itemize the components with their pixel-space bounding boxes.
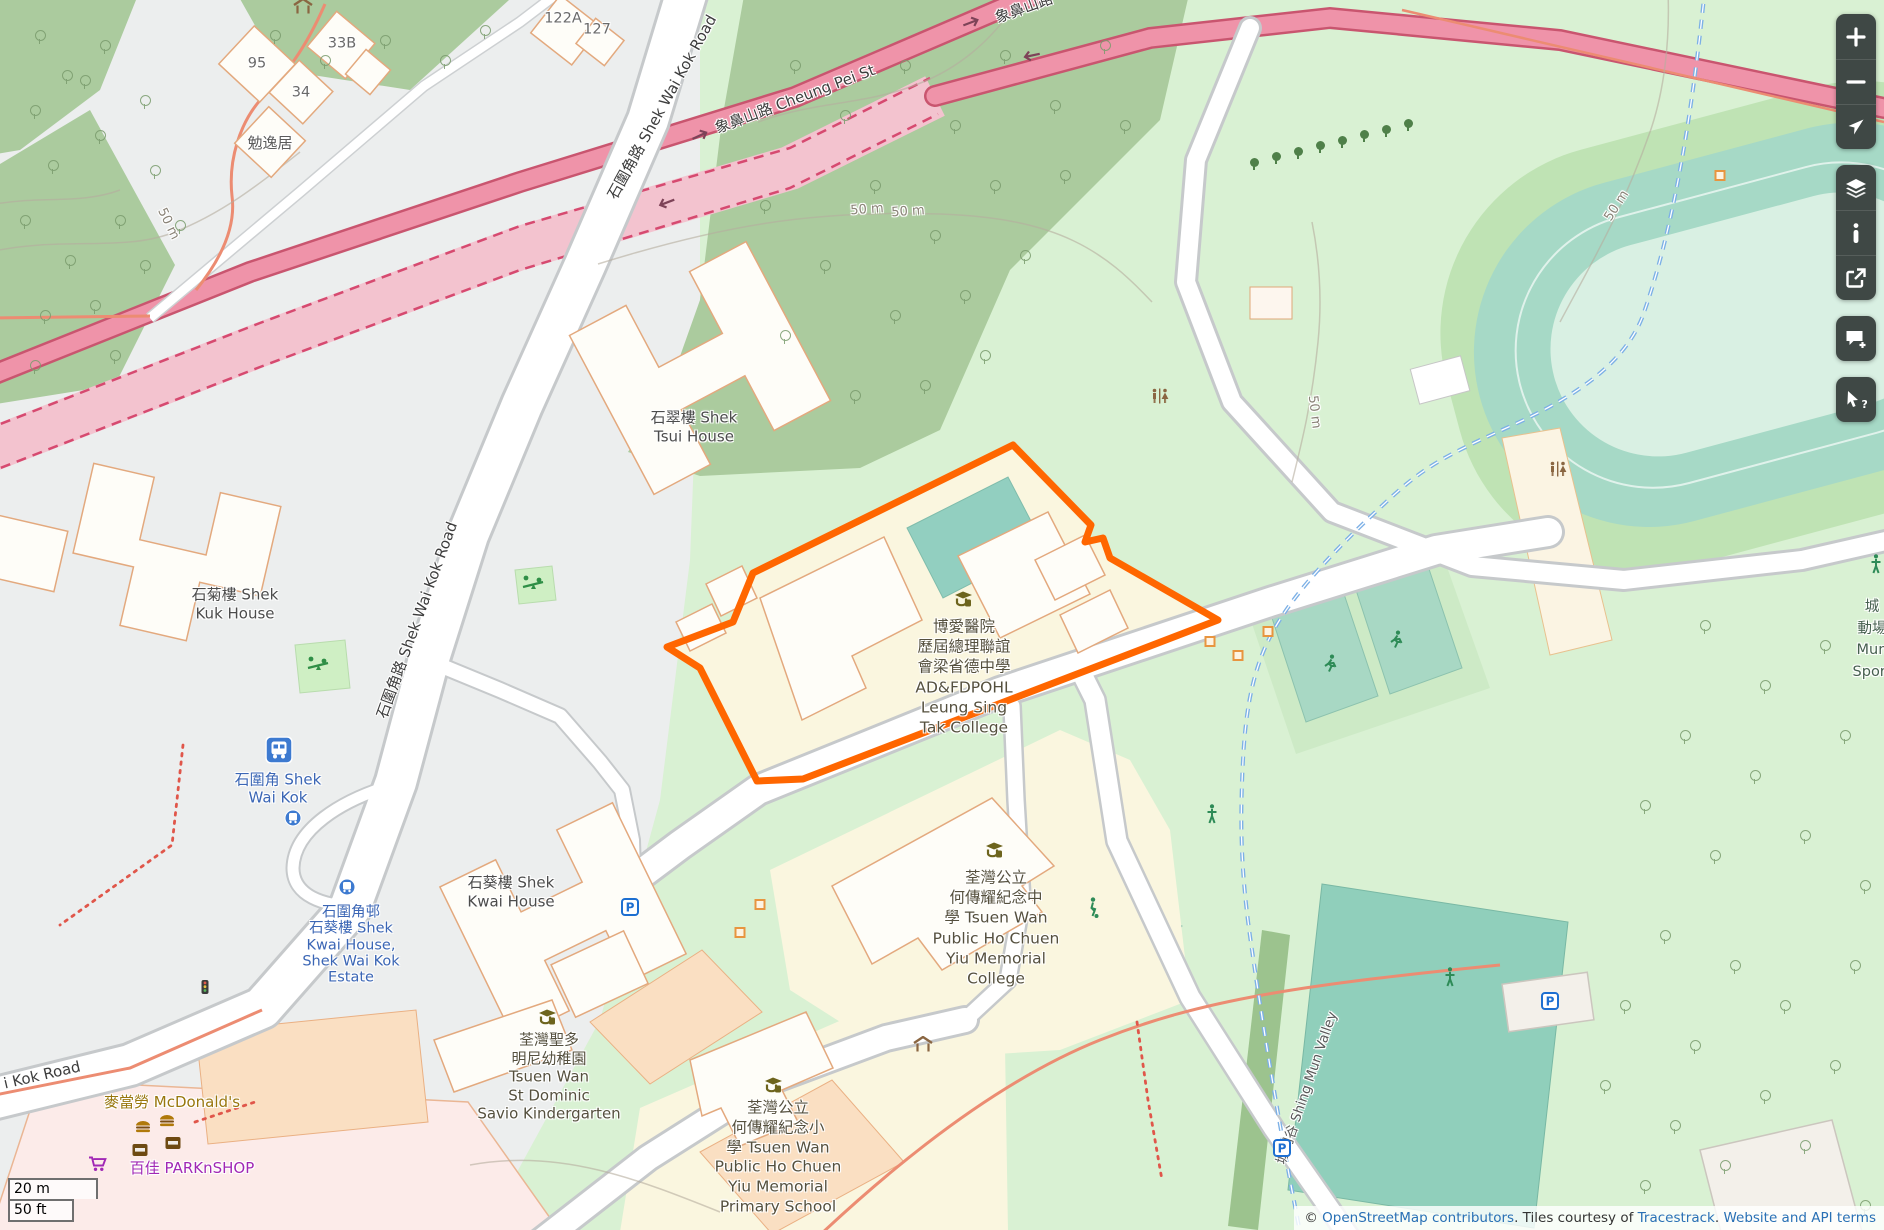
tree-icon <box>850 390 861 401</box>
tree-icon <box>270 30 281 41</box>
tree-icon <box>1000 50 1011 61</box>
tree-icon <box>65 255 76 266</box>
tree-icon <box>1830 1060 1841 1071</box>
tree-icon <box>1750 770 1761 781</box>
comment-plus-icon <box>1845 329 1867 349</box>
locate-button[interactable] <box>1836 104 1876 149</box>
tree-icon <box>1840 730 1851 741</box>
attribution: © OpenStreetMap contributors. Tiles cour… <box>1294 1206 1884 1230</box>
tree-icon <box>1690 1040 1701 1051</box>
tree-icon <box>1720 1160 1731 1171</box>
tree-icon <box>1730 960 1741 971</box>
attribution-prefix: © <box>1304 1210 1322 1226</box>
control-group: ? <box>1836 377 1876 422</box>
tree-icon <box>1700 620 1711 631</box>
control-group <box>1836 165 1876 300</box>
info-icon <box>1852 223 1860 243</box>
tree-icon <box>1800 830 1811 841</box>
tree-icon <box>780 330 791 341</box>
tree-icon <box>1860 880 1871 891</box>
tree-icon <box>980 350 991 361</box>
tree-icon <box>380 35 391 46</box>
tree-icon <box>840 110 851 121</box>
tree-icon <box>1820 640 1831 651</box>
navigation-arrow-icon <box>1847 118 1865 136</box>
tree-icon <box>1850 960 1861 971</box>
tree-icon <box>95 130 106 141</box>
tree-icon <box>1780 1000 1791 1011</box>
tree-icon <box>1060 170 1071 181</box>
layers-button[interactable] <box>1836 165 1876 210</box>
share-icon <box>1846 268 1866 288</box>
tree-icon <box>1120 120 1131 131</box>
control-group <box>1836 316 1876 361</box>
zoom-out-button[interactable] <box>1836 59 1876 104</box>
tree-icon <box>1710 850 1721 861</box>
tree-icon <box>440 55 451 66</box>
zoom-in-button[interactable] <box>1836 14 1876 59</box>
minus-icon <box>1846 72 1866 92</box>
tree-icon <box>1316 141 1325 150</box>
tree-icon <box>1294 147 1303 156</box>
tree-icon <box>1338 136 1347 145</box>
tree-icon <box>1100 40 1111 51</box>
scale-bar: 20 m 50 ft <box>8 1178 98 1222</box>
map-controls: ? <box>1836 14 1876 422</box>
tree-icon <box>930 230 941 241</box>
tree-icon <box>1272 152 1281 161</box>
tree-icon <box>20 215 31 226</box>
tree-icon <box>1680 730 1691 741</box>
layers-icon <box>1845 178 1867 198</box>
share-button[interactable] <box>1836 255 1876 300</box>
tree-icon <box>1600 1080 1611 1091</box>
tree-icon <box>1050 100 1061 111</box>
scale-metric: 20 m <box>8 1178 98 1199</box>
tree-icon <box>100 40 111 51</box>
tree-icon <box>1640 800 1651 811</box>
tree-icon <box>1360 130 1369 139</box>
osm-contributors-link[interactable]: OpenStreetMap contributors <box>1322 1210 1514 1226</box>
query-cursor-icon: ? <box>1845 390 1867 410</box>
add-note-button[interactable] <box>1836 316 1876 361</box>
tree-icon <box>760 200 771 211</box>
tree-icon <box>1800 1140 1811 1151</box>
tree-icon <box>320 55 331 66</box>
tree-icon <box>80 75 91 86</box>
tree-icon <box>110 350 121 361</box>
tree-icon <box>48 160 59 171</box>
tree-icon <box>30 105 41 116</box>
query-features-button[interactable]: ? <box>1836 377 1876 422</box>
tree-icon <box>990 180 1001 191</box>
tree-icon <box>1620 1000 1631 1011</box>
website-api-terms-link[interactable]: Website and API terms <box>1723 1210 1876 1226</box>
map-info-button[interactable] <box>1836 210 1876 255</box>
map-tiles <box>0 0 1884 1230</box>
tree-icon <box>820 260 831 271</box>
map-canvas[interactable]: 石圍角路 Shek Wai Kok Road象鼻山路 Cheung Pei St… <box>0 0 1884 1230</box>
tree-icon <box>175 220 186 231</box>
tree-icon <box>950 120 961 131</box>
tree-icon <box>870 180 881 191</box>
tree-icon <box>1250 158 1259 167</box>
tree-icon <box>1760 680 1771 691</box>
tree-icon <box>1404 119 1413 128</box>
tree-icon <box>790 60 801 71</box>
tree-icon <box>150 165 161 176</box>
tree-icon <box>1660 930 1671 941</box>
tree-icon <box>1020 250 1031 261</box>
tree-icon <box>35 30 46 41</box>
tracestrack-link[interactable]: Tracestrack <box>1638 1210 1715 1226</box>
tree-icon <box>1640 1180 1651 1191</box>
attribution-middle: . Tiles courtesy of <box>1514 1210 1638 1226</box>
svg-text:?: ? <box>1862 398 1868 410</box>
control-group <box>1836 14 1876 149</box>
tree-icon <box>1382 125 1391 134</box>
tree-icon <box>30 360 41 371</box>
tree-icon <box>1760 1090 1771 1101</box>
tree-icon <box>900 60 911 71</box>
tree-icon <box>920 380 931 391</box>
tree-icon <box>115 215 126 226</box>
scale-imperial: 50 ft <box>8 1199 74 1222</box>
tree-icon <box>40 310 51 321</box>
tree-icon <box>960 290 971 301</box>
tree-icon <box>480 25 491 36</box>
tree-icon <box>1670 1120 1681 1131</box>
tree-icon <box>140 260 151 271</box>
plus-icon <box>1846 27 1866 47</box>
tree-icon <box>62 70 73 81</box>
tree-icon <box>90 300 101 311</box>
tree-icon <box>890 310 901 321</box>
tree-icon <box>140 95 151 106</box>
